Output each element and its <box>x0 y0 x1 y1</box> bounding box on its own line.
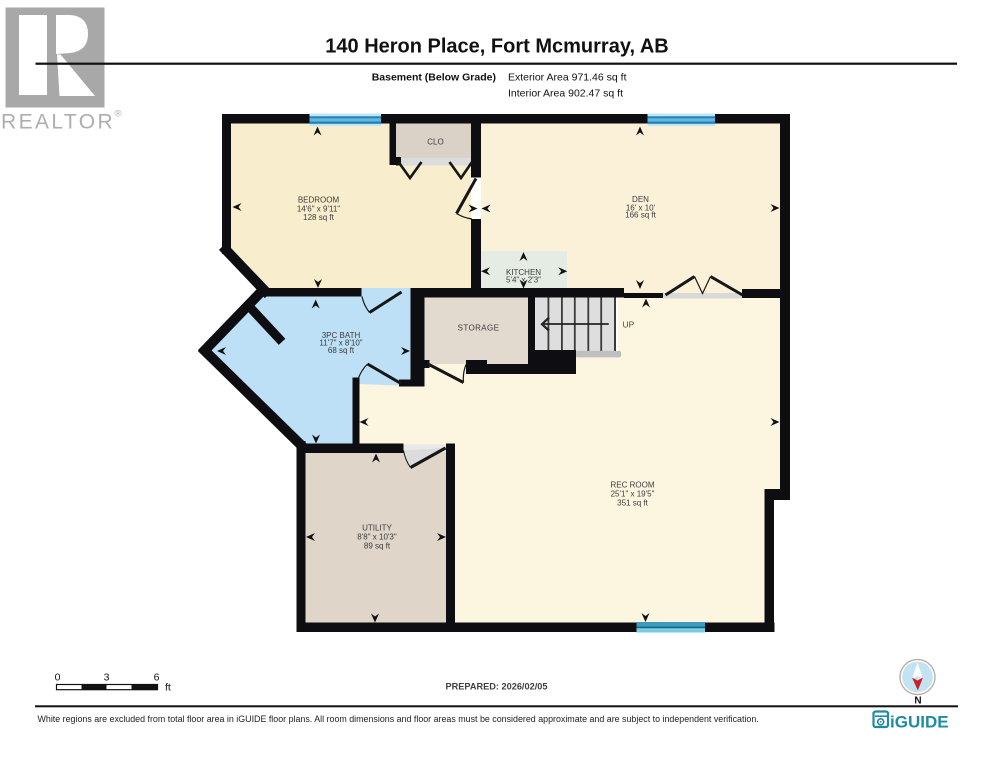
svg-text:0: 0 <box>55 672 61 684</box>
svg-text:5'4" x 2'3": 5'4" x 2'3" <box>506 276 541 285</box>
svg-text:BEDROOM: BEDROOM <box>298 195 340 204</box>
svg-text:166 sq ft: 166 sq ft <box>625 211 656 220</box>
svg-text:25'1" x 19'5": 25'1" x 19'5" <box>611 490 655 499</box>
svg-text:3: 3 <box>104 672 110 684</box>
svg-text:Exterior Area 971.46 sq ft: Exterior Area 971.46 sq ft <box>508 72 627 84</box>
svg-text:REALTOR: REALTOR <box>1 111 115 134</box>
svg-text:8'8" x 10'3": 8'8" x 10'3" <box>357 533 397 542</box>
svg-text:UTILITY: UTILITY <box>362 524 392 533</box>
svg-text:REC ROOM: REC ROOM <box>611 481 655 490</box>
svg-text:Basement (Below Grade): Basement (Below Grade) <box>372 72 496 84</box>
svg-text:89 sq ft: 89 sq ft <box>364 542 391 551</box>
svg-text:128 sq ft: 128 sq ft <box>303 213 334 222</box>
svg-text:ft: ft <box>165 682 171 694</box>
svg-text:CLO: CLO <box>427 138 443 147</box>
svg-text:PREPARED: 2026/02/05: PREPARED: 2026/02/05 <box>446 682 548 692</box>
svg-text:140 Heron Place, Fort Mcmurray: 140 Heron Place, Fort Mcmurray, AB <box>325 36 668 58</box>
svg-text:White regions are excluded fro: White regions are excluded from total fl… <box>38 714 759 724</box>
svg-text:351 sq ft: 351 sq ft <box>617 499 648 508</box>
svg-text:iGUIDE: iGUIDE <box>890 713 949 732</box>
svg-text:68 sq ft: 68 sq ft <box>328 346 355 355</box>
svg-text:STORAGE: STORAGE <box>458 323 500 332</box>
svg-text:6: 6 <box>154 672 160 684</box>
svg-text:UP: UP <box>623 320 635 330</box>
svg-text:Interior Area 902.47 sq ft: Interior Area 902.47 sq ft <box>508 88 623 100</box>
svg-text:®: ® <box>115 109 122 120</box>
svg-text:N: N <box>914 696 921 707</box>
